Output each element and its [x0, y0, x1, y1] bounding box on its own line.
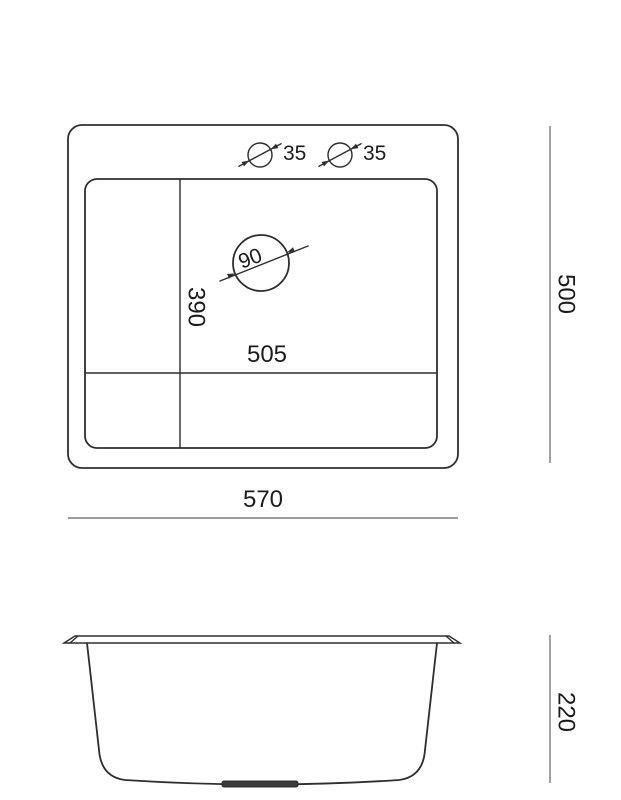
tap-hole-1: 35	[239, 142, 306, 167]
overall-length-label: 570	[243, 486, 283, 513]
side-view-bowl-outline	[87, 643, 437, 785]
depth-label: 220	[553, 692, 580, 732]
side-view-drain-stub	[222, 781, 298, 787]
overall-width-label: 500	[553, 274, 580, 314]
overall-length-dimension: 570	[68, 486, 458, 518]
inner-length-label: 505	[247, 341, 287, 368]
inner-width-label: 390	[183, 287, 210, 327]
depth-dimension: 220	[550, 635, 580, 783]
side-view-rim	[64, 636, 460, 643]
tap-hole-2-diameter-label: 35	[363, 142, 386, 165]
top-view-outer-edge	[68, 125, 458, 468]
top-view: 35 35 90 505 390	[68, 125, 458, 468]
drain-diameter-label: 90	[235, 244, 265, 274]
sink-technical-drawing: 35 35 90 505 390 570 500	[0, 0, 621, 800]
side-view	[64, 636, 460, 787]
tap-hole-2: 35	[319, 142, 386, 167]
drain-hole: 90	[220, 235, 308, 291]
tap-hole-1-diameter-label: 35	[283, 142, 306, 165]
top-view-inner-bowl-edge	[85, 179, 437, 448]
overall-width-dimension: 500	[550, 126, 580, 463]
